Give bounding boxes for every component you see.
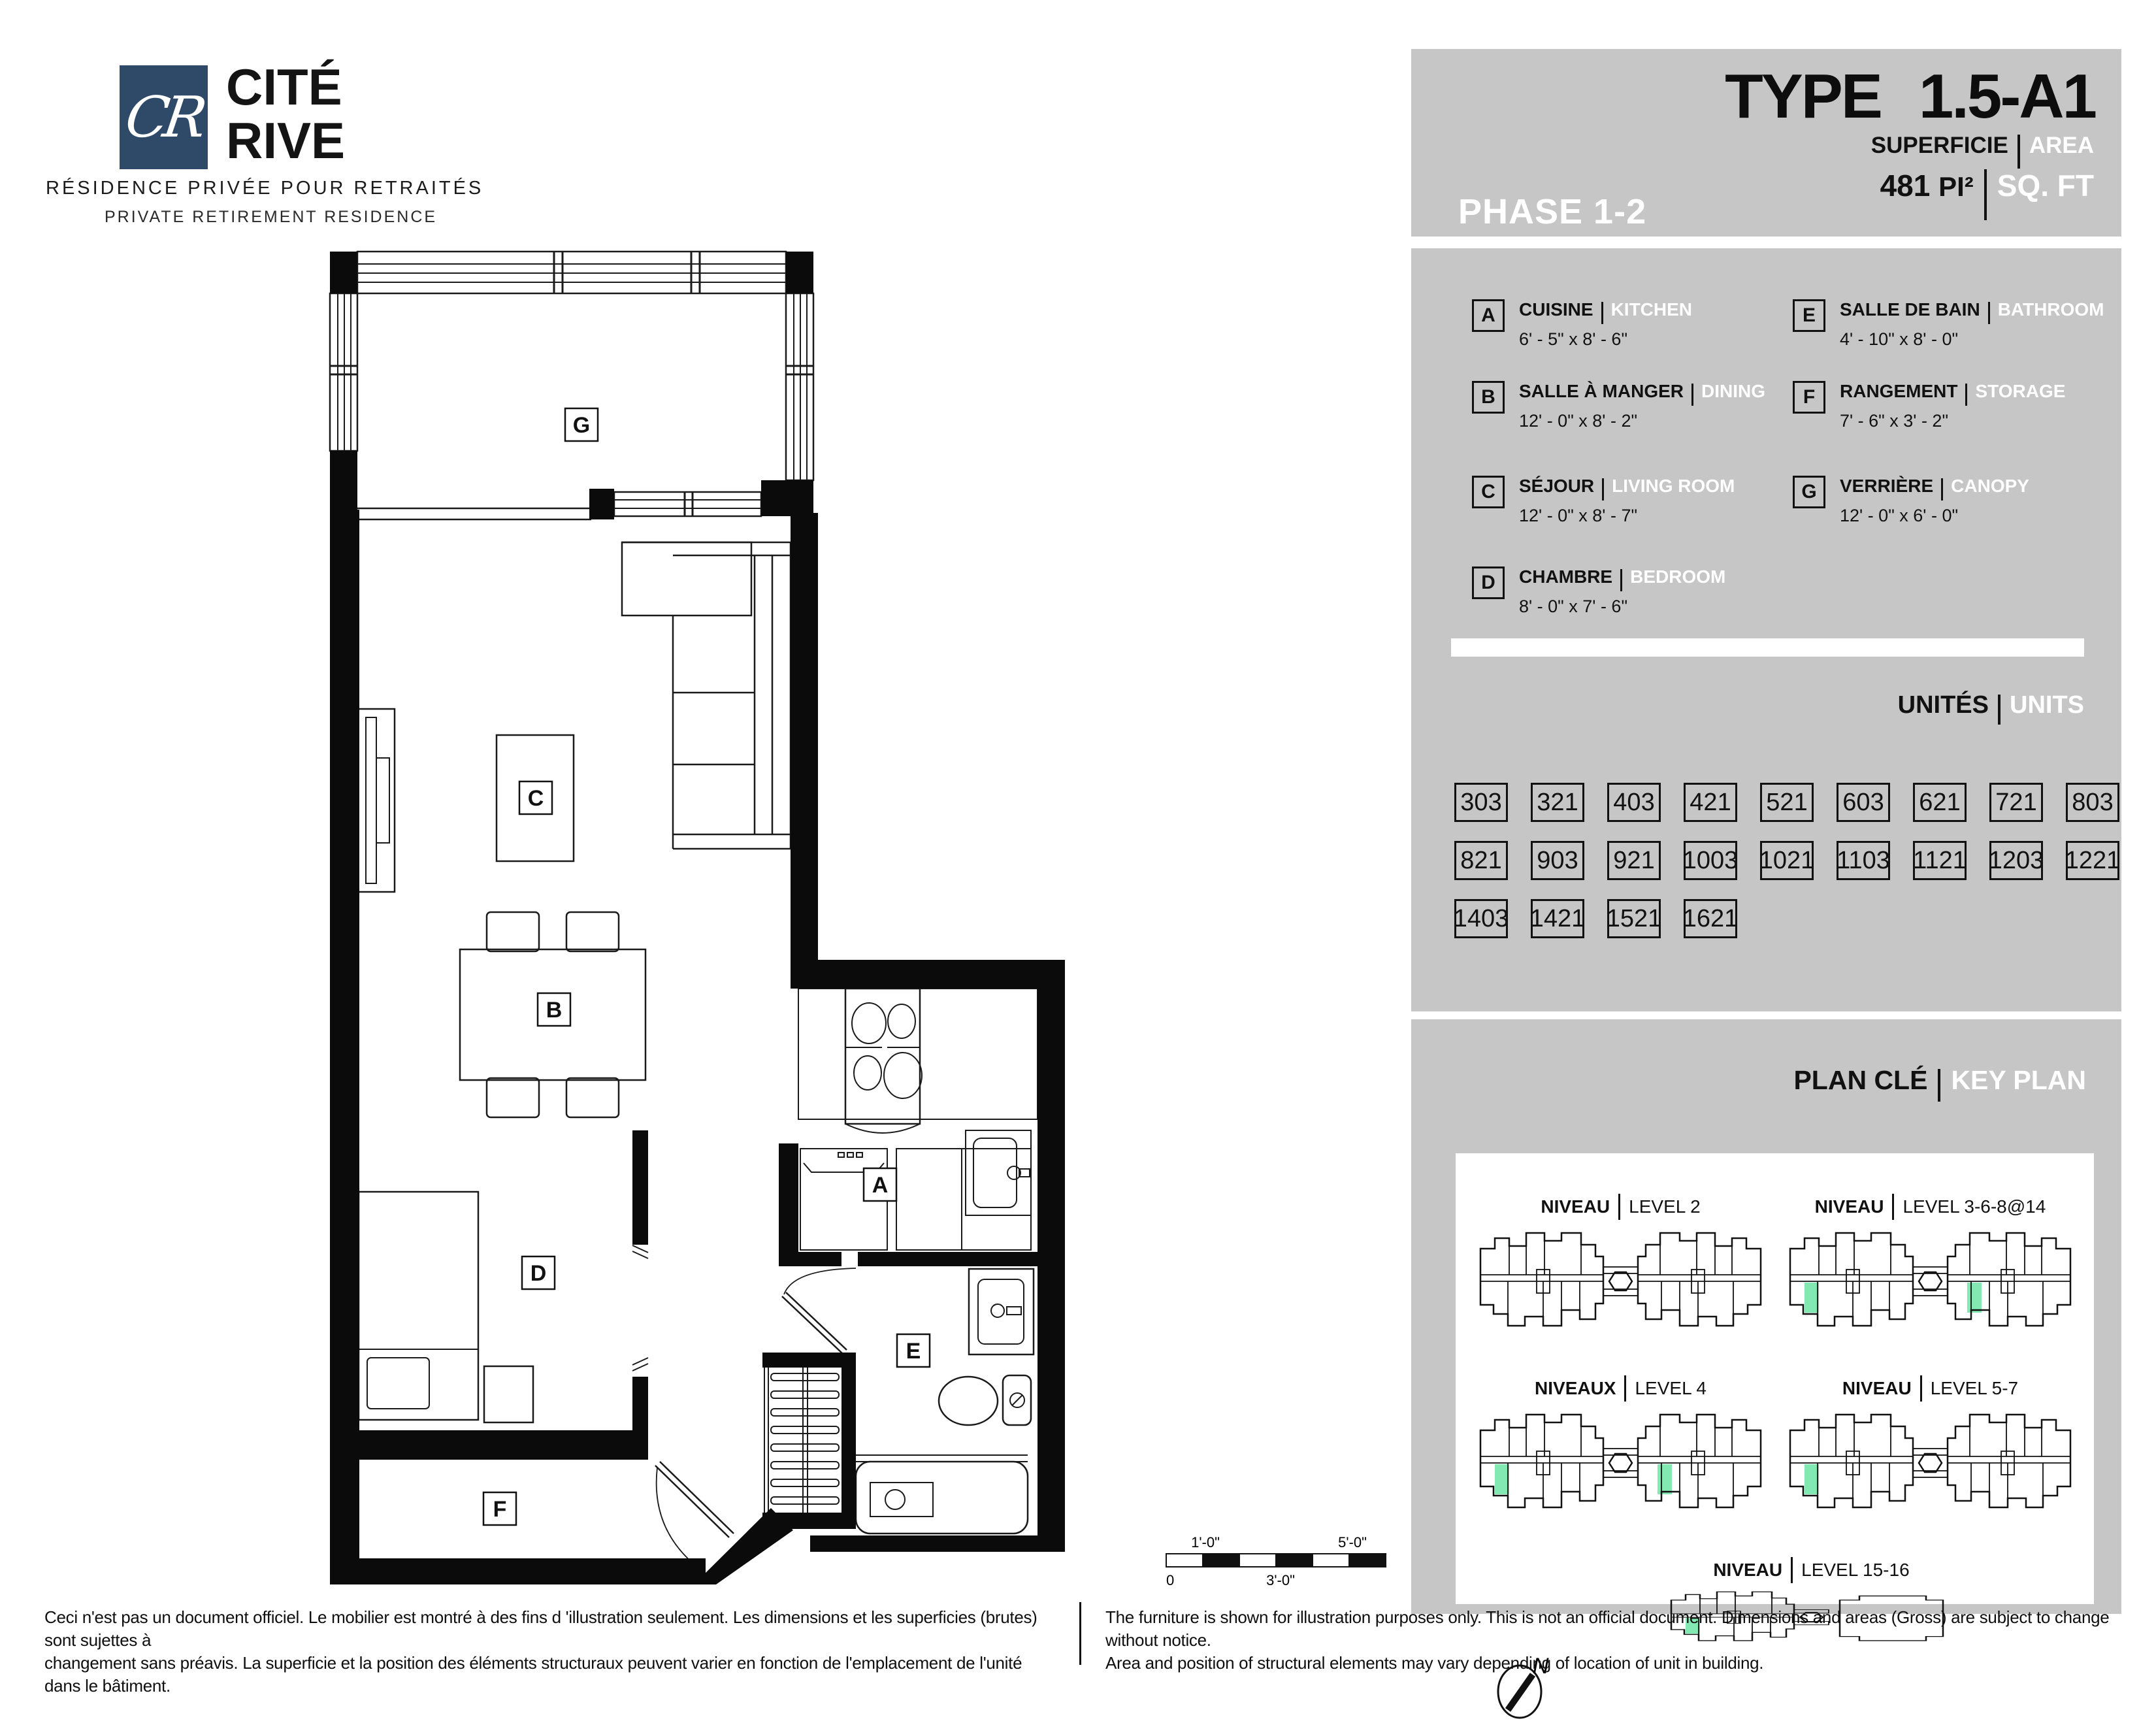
legend-name-fr: SÉJOUR	[1519, 476, 1594, 496]
unit-number-803: 803	[2066, 783, 2119, 822]
logo-name-line2: RIVE	[226, 114, 345, 167]
legend-dims: 12' - 0" x 8' - 7"	[1519, 506, 1735, 526]
logo-name-line1: CITÉ	[226, 60, 345, 114]
floor-plan: G C B A D E F	[314, 235, 1071, 1588]
unit-number-321: 321	[1531, 783, 1584, 822]
legend-item-e: E SALLE DE BAINBATHROOM 4' - 10" x 8' - …	[1793, 299, 2104, 350]
legend-name-en: BEDROOM	[1630, 566, 1725, 587]
legend-name-en: BATHROOM	[1998, 299, 2104, 320]
legend-item-a: A CUISINEKITCHEN 6' - 5" x 8' - 6"	[1472, 299, 1692, 350]
phase-label: PHASE 1-2	[1458, 191, 1646, 232]
unit-type-title: TYPE1.5-A1	[1725, 61, 2095, 133]
unit-number-521: 521	[1760, 783, 1814, 822]
area-value: 481 PI²SQ. FT	[1880, 168, 2094, 207]
unit-number-603: 603	[1837, 783, 1890, 822]
legend-letter-box: B	[1472, 381, 1505, 414]
room-marker-b: B	[538, 993, 570, 1026]
unit-number-1621: 1621	[1684, 899, 1737, 938]
scale-bar: 1'-0" 5'-0" 0 3'-0"	[1150, 1522, 1411, 1594]
legend-name-en: STORAGE	[1975, 381, 2065, 401]
disclaimer-en: The furniture is shown for illustration …	[1105, 1606, 2125, 1675]
keyplan-level-label-1: NIVEAULEVEL 2	[1475, 1194, 1766, 1220]
keyplan-figure-3	[1475, 1408, 1766, 1522]
legend-letter-box: D	[1472, 566, 1505, 599]
room-marker-d: D	[522, 1256, 555, 1289]
unit-number-1021: 1021	[1760, 841, 1814, 880]
legend-letter-box: F	[1793, 381, 1825, 414]
svg-text:A: A	[872, 1173, 889, 1198]
room-marker-g: G	[565, 408, 598, 441]
units-divider-bar	[1451, 638, 2084, 657]
footer-divider	[1079, 1602, 1081, 1665]
legend-dims: 4' - 10" x 8' - 0"	[1840, 329, 2104, 350]
unit-number-1003: 1003	[1684, 841, 1737, 880]
keyplan-canvas: NIVEAULEVEL 2NIVEAULEVEL 3-6-8@14NIVEAUX…	[1456, 1153, 2094, 1604]
keyplan-figure-4	[1785, 1408, 2076, 1522]
keyplan-figure-1	[1475, 1226, 1766, 1341]
logo-monogram: CR	[122, 85, 206, 150]
legend-item-b: B SALLE À MANGERDINING 12' - 0" x 8' - 2…	[1472, 381, 1765, 431]
unit-number-1521: 1521	[1607, 899, 1661, 938]
svg-text:F: F	[493, 1497, 507, 1522]
legend-name-fr: SALLE DE BAIN	[1840, 299, 1980, 320]
unit-number-821: 821	[1454, 841, 1508, 880]
legend-item-f: F RANGEMENTSTORAGE 7' - 6" x 3' - 2"	[1793, 381, 2065, 431]
superficie-area-label: SUPERFICIEAREA	[1871, 133, 2094, 159]
header-panel: TYPE1.5-A1 SUPERFICIEAREA 481 PI²SQ. FT …	[1411, 49, 2121, 237]
unit-number-1121: 1121	[1913, 841, 1967, 880]
unit-number-721: 721	[1989, 783, 2043, 822]
logo-tagline-en: PRIVATE RETIREMENT RESIDENCE	[105, 208, 437, 227]
logo-tagline-fr: RÉSIDENCE PRIVÉE POUR RETRAITÉS	[46, 178, 483, 199]
unit-number-421: 421	[1684, 783, 1737, 822]
keyplan-level-label-2: NIVEAULEVEL 3-6-8@14	[1785, 1194, 2076, 1220]
legend-dims: 12' - 0" x 6' - 0"	[1840, 506, 2029, 526]
svg-text:G: G	[573, 413, 590, 438]
units-title: UNITÉSUNITS	[1451, 691, 2084, 719]
svg-text:E: E	[906, 1339, 921, 1364]
legend-name-fr: CHAMBRE	[1519, 566, 1612, 587]
legend-name-en: CANOPY	[1951, 476, 2029, 496]
logo-name: CITÉ RIVE	[226, 60, 345, 167]
legend-name-fr: CUISINE	[1519, 299, 1593, 320]
legend-name-en: KITCHEN	[1611, 299, 1692, 320]
unit-number-303: 303	[1454, 783, 1508, 822]
room-marker-e: E	[897, 1334, 930, 1367]
legend-letter-box: G	[1793, 476, 1825, 508]
unit-number-921: 921	[1607, 841, 1661, 880]
legend-letter-box: E	[1793, 299, 1825, 332]
legend-letter-box: A	[1472, 299, 1505, 332]
keyplan-level-label-3: NIVEAUXLEVEL 4	[1475, 1375, 1766, 1402]
floorplan-sheet: { "colors": {"navy":"#2f4a68","panel_gra…	[0, 0, 2156, 1666]
unit-number-403: 403	[1607, 783, 1661, 822]
keyplan-level-label-4: NIVEAULEVEL 5-7	[1785, 1375, 2076, 1402]
legend-dims: 7' - 6" x 3' - 2"	[1840, 411, 2065, 431]
unit-number-903: 903	[1531, 841, 1584, 880]
keyplan-figure-2	[1785, 1226, 2076, 1341]
unit-number-1221: 1221	[2066, 841, 2119, 880]
legend-letter-box: C	[1472, 476, 1505, 508]
legend-name-en: DINING	[1701, 381, 1765, 401]
svg-text:B: B	[546, 998, 563, 1023]
unit-number-1103: 1103	[1837, 841, 1890, 880]
legend-item-c: C SÉJOURLIVING ROOM 12' - 0" x 8' - 7"	[1472, 476, 1735, 526]
legend-item-g: G VERRIÈRECANOPY 12' - 0" x 6' - 0"	[1793, 476, 2029, 526]
scale-label-1ft: 1'-0"	[1191, 1534, 1220, 1551]
scale-label-3ft: 3'-0"	[1266, 1572, 1295, 1588]
disclaimer-en-line1: The furniture is shown for illustration …	[1105, 1606, 2125, 1652]
legend-dims: 12' - 0" x 8' - 2"	[1519, 411, 1765, 431]
legend-panel: A CUISINEKITCHEN 6' - 5" x 8' - 6"B SALL…	[1411, 248, 2121, 1011]
keyplan-title: PLAN CLÉKEY PLAN	[1793, 1065, 2086, 1096]
unit-number-1403: 1403	[1454, 899, 1508, 938]
keyplan-panel: PLAN CLÉKEY PLAN NIVEAULEVEL 2NIVEAULEVE…	[1411, 1019, 2121, 1614]
legend-dims: 6' - 5" x 8' - 6"	[1519, 329, 1692, 350]
disclaimer-fr: Ceci n'est pas un document officiel. Le …	[44, 1606, 1051, 1698]
svg-text:D: D	[531, 1261, 547, 1286]
legend-dims: 8' - 0" x 7' - 6"	[1519, 597, 1725, 617]
scale-label-5ft: 5'-0"	[1338, 1534, 1367, 1551]
unit-number-621: 621	[1913, 783, 1967, 822]
svg-text:C: C	[528, 786, 544, 811]
room-marker-f: F	[483, 1492, 516, 1525]
legend-item-d: D CHAMBREBEDROOM 8' - 0" x 7' - 6"	[1472, 566, 1725, 617]
legend-name-fr: RANGEMENT	[1840, 381, 1957, 401]
room-marker-a: A	[864, 1168, 896, 1201]
scale-label-0: 0	[1166, 1572, 1174, 1588]
keyplan-level-label-5: NIVEAULEVEL 15-16	[1666, 1557, 1957, 1583]
logo-cr-square: CR	[120, 65, 208, 169]
legend-name-en: LIVING ROOM	[1612, 476, 1735, 496]
unit-number-1421: 1421	[1531, 899, 1584, 938]
legend-name-fr: SALLE À MANGER	[1519, 381, 1684, 401]
disclaimer-en-line2: Area and position of structural elements…	[1105, 1652, 2125, 1675]
legend-name-fr: VERRIÈRE	[1840, 476, 1933, 496]
room-marker-c: C	[519, 781, 552, 814]
disclaimer-fr-line1: Ceci n'est pas un document officiel. Le …	[44, 1606, 1051, 1652]
disclaimer-fr-line2: changement sans préavis. La superficie e…	[44, 1652, 1051, 1698]
unit-number-1203: 1203	[1989, 841, 2043, 880]
